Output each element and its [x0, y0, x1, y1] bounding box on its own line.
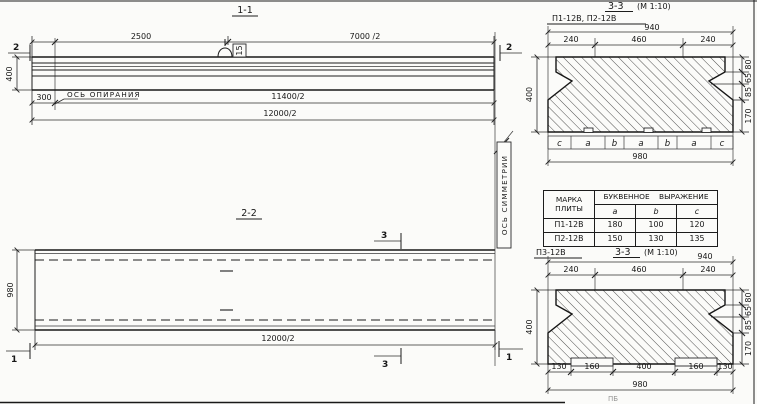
table-row-p1-12v: П1-12В 180 100 120: [544, 219, 718, 233]
p3-dim-460: 460: [631, 265, 646, 274]
p12-bottom-groove: [644, 128, 653, 133]
p12-dim-65: 65: [744, 73, 753, 83]
symmetry-axis: ОСЬ СИММЕТРИИ: [495, 32, 513, 366]
p3-dim-170: 170: [744, 341, 753, 356]
cell-mark-p1: П1-12В: [544, 219, 595, 233]
p3-dim-80: 80: [744, 292, 753, 302]
dim-12000-2-top: 12000/2: [263, 109, 296, 118]
cell-a-p2: 150: [595, 233, 636, 247]
bearing-axis-label: ОСЬ ОПИРАНИЯ: [67, 90, 141, 99]
p12-letter-b1: b: [612, 139, 617, 149]
p12-bottom-groove: [584, 128, 593, 133]
p12-dim-460: 460: [631, 35, 646, 44]
dim-980-left: 980: [6, 282, 15, 297]
cut-marker-3-top: 3: [374, 231, 401, 249]
p3-dim-400-bottom: 400: [636, 362, 651, 371]
p3-dim-940: 940: [697, 252, 712, 261]
cell-c-p2: 135: [677, 233, 718, 247]
dim-2500: 2500: [131, 32, 151, 41]
p12-dim-80: 80: [744, 59, 753, 69]
dim-12000-2-bottom: 12000/2: [261, 334, 294, 343]
table-col-a: a: [595, 205, 636, 219]
cut-label-2-left: 2: [13, 43, 19, 53]
p3-dim-160-2: 160: [688, 362, 703, 371]
table-header-mark: МАРКА ПЛИТЫ: [544, 191, 595, 219]
p12-dim-940: 940: [644, 23, 659, 32]
table-col-c: c: [677, 205, 718, 219]
cut-marker-2-left: 2: [8, 43, 30, 61]
section-2-2-title: 2-2: [241, 208, 257, 219]
section-3-3-p12: 3-3 (М 1:10) П1-12В, П2-12В: [525, 1, 753, 166]
p3-dim-85: 85: [744, 320, 753, 330]
p3-dim-160-1: 160: [584, 362, 599, 371]
section-1-1: 15 2 2 1-1 2500 7000 /2 400 300 ОСЬ ОПИР…: [5, 5, 522, 154]
plate-letter-table: МАРКА ПЛИТЫ БУКВЕННОЕ ВЫРАЖЕНИЕ a b c П1…: [543, 190, 718, 247]
symmetry-axis-label: ОСЬ СИММЕТРИИ: [500, 155, 509, 235]
p12-cross-section-body: [548, 57, 733, 132]
cell-b-p1: 100: [636, 219, 677, 233]
cell-b-p2: 130: [636, 233, 677, 247]
cell-a-p1: 180: [595, 219, 636, 233]
p12-letter-c1: c: [557, 139, 562, 149]
p3-dim-980: 980: [632, 380, 647, 389]
cell-mark-p2: П2-12В: [544, 233, 595, 247]
p12-dim-240-right: 240: [700, 35, 715, 44]
cut-marker-1-left: 1: [6, 343, 30, 365]
cut-label-3-top: 3: [381, 231, 387, 241]
cropped-text-artifact: ПБ: [608, 395, 618, 403]
p12-letter-b2: b: [665, 139, 670, 149]
cut-marker-1-right: 1: [499, 341, 523, 363]
cut-label-2-right: 2: [506, 43, 512, 53]
p3-dim-65: 65: [744, 306, 753, 316]
drawing-sheet: 15 2 2 1-1 2500 7000 /2 400 300 ОСЬ ОПИР…: [0, 0, 757, 404]
p12-dim-85: 85: [744, 87, 753, 97]
section-3-3-p3: П3-12В 3-3 (М 1:10) 940: [525, 247, 753, 394]
p3-cross-section-body: [548, 290, 733, 364]
p3-section-scale: (М 1:10): [644, 248, 678, 257]
table-col-b: b: [636, 205, 677, 219]
cell-c-p1: 120: [677, 219, 718, 233]
dim-11400-2: 11400/2: [271, 92, 304, 101]
cut-marker-2-right: 2: [500, 43, 522, 61]
p3-section-title: 3-3: [615, 247, 631, 258]
dim-300: 300: [36, 93, 51, 102]
p3-dim-400-left: 400: [525, 319, 534, 334]
p12-letter-a1: a: [585, 139, 590, 149]
section-2-2-dimension-lines: [12, 250, 495, 350]
p3-dim-130-2: 130: [717, 362, 732, 371]
dim-400-left: 400: [5, 66, 14, 81]
p12-dim-240-left: 240: [563, 35, 578, 44]
p12-dim-980: 980: [632, 152, 647, 161]
p12-dim-400: 400: [525, 87, 534, 102]
p3-label: П3-12В: [536, 248, 566, 257]
letter-values-table: МАРКА ПЛИТЫ БУКВЕННОЕ ВЫРАЖЕНИЕ a b c П1…: [543, 190, 718, 247]
p3-dim-240-left: 240: [563, 265, 578, 274]
cut-marker-3-bottom: 3: [374, 348, 401, 370]
p12-letter-a3: a: [691, 139, 696, 149]
p12-bottom-groove: [702, 128, 711, 133]
section-2-2-plate-outline: [35, 250, 495, 330]
section-2-2: 2-2 ОСЬ СИММЕТРИИ: [6, 32, 523, 370]
table-header-expression: БУКВЕННОЕ ВЫРАЖЕНИЕ: [595, 191, 718, 205]
cut-label-1-left: 1: [11, 355, 17, 365]
section-1-1-title: 1-1: [237, 5, 253, 16]
p12-section-scale: (М 1:10): [637, 2, 671, 11]
cut-label-3-bottom: 3: [382, 360, 388, 370]
p12-letter-a2: a: [638, 139, 643, 149]
p12-dim-170: 170: [744, 108, 753, 123]
section-1-1-plate-outline: [32, 57, 494, 90]
p12-section-title: 3-3: [608, 1, 624, 12]
cut-label-1-right: 1: [506, 353, 512, 363]
loop-tag-label: 15: [235, 45, 244, 55]
table-row-p2-12v: П2-12В 150 130 135: [544, 233, 718, 247]
dim-7000-2: 7000 /2: [350, 32, 381, 41]
p3-dim-240-right: 240: [700, 265, 715, 274]
p3-dim-130-1: 130: [551, 362, 566, 371]
p12-letter-c2: c: [720, 139, 725, 149]
p12-label: П1-12В, П2-12В: [552, 14, 616, 23]
